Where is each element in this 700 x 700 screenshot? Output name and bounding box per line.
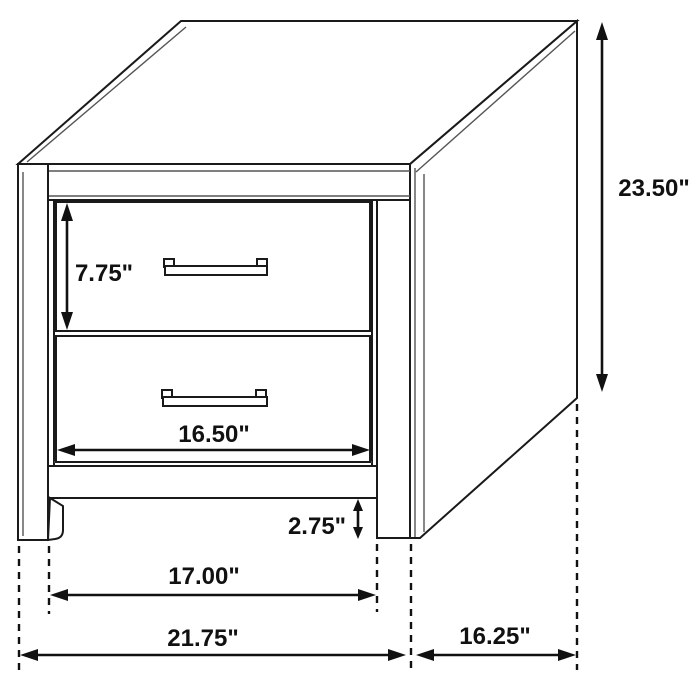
- top-rail: [18, 164, 410, 200]
- right-leg: [377, 200, 410, 538]
- dimension-label: 17.00": [168, 563, 239, 590]
- handle-bar-icon: [163, 397, 267, 406]
- dimension-label: 2.75": [288, 513, 346, 540]
- left-leg-inner-face: [48, 498, 63, 540]
- dimension-label: 16.50": [178, 421, 249, 448]
- dimension-label: 7.75": [75, 260, 133, 287]
- nightstand-drawing: 23.50" 7.75" 16.50" 2.75" 17.00" 21.75": [0, 0, 700, 700]
- dimension-label: 23.50": [618, 175, 689, 202]
- bottom-rail: [48, 466, 377, 498]
- dimension-label: 21.75": [167, 625, 238, 652]
- handle-bar-icon: [165, 266, 267, 275]
- dimension-label: 16.25": [459, 623, 530, 650]
- dimension-diagram: 23.50" 7.75" 16.50" 2.75" 17.00" 21.75": [0, 0, 700, 700]
